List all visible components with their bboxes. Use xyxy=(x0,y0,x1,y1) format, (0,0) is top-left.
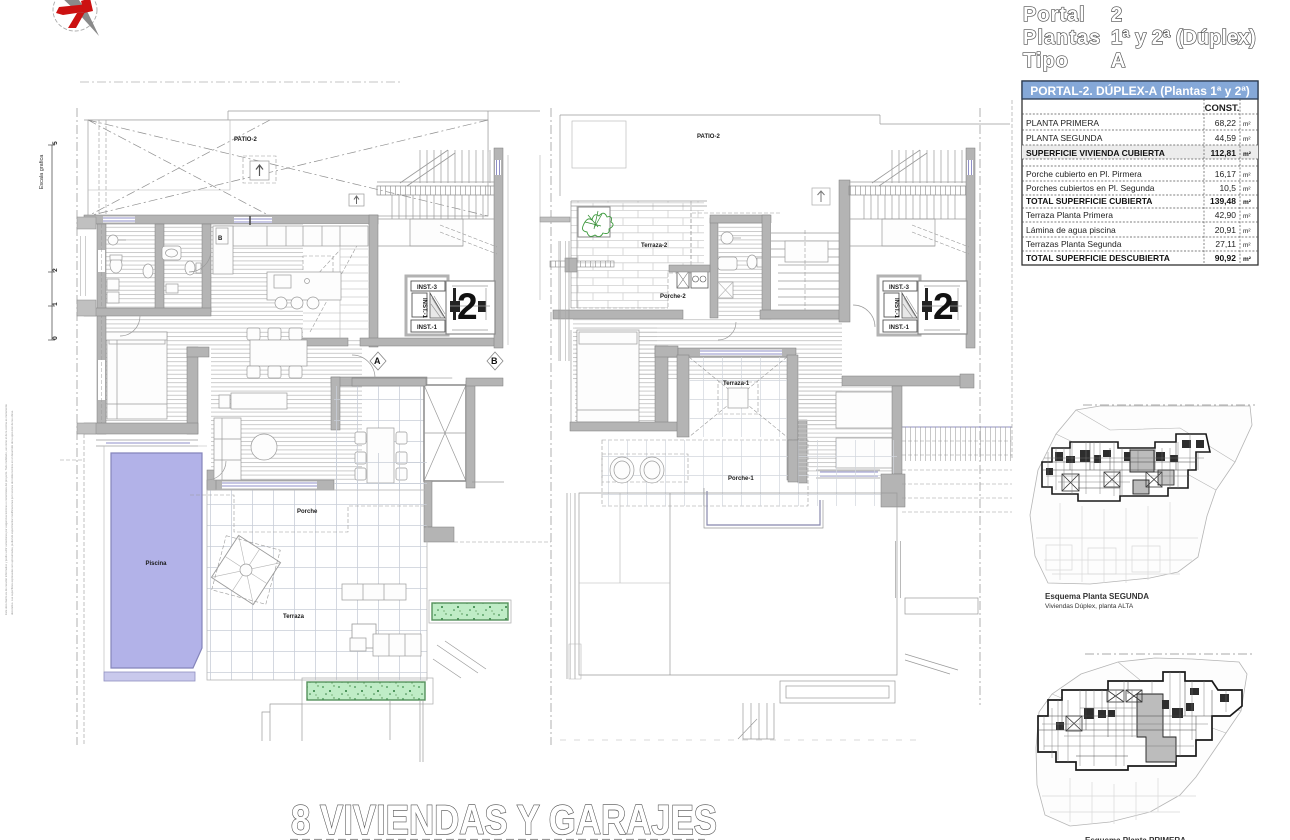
svg-text:m²: m² xyxy=(1243,199,1252,206)
svg-text:Escala grafica: Escala grafica xyxy=(39,154,45,189)
svg-text:139,48: 139,48 xyxy=(1210,196,1236,206)
svg-text:Tipo: Tipo xyxy=(1023,50,1069,72)
svg-text:m²: m² xyxy=(1243,121,1251,128)
svg-text:A: A xyxy=(374,356,381,366)
svg-text:20,91: 20,91 xyxy=(1215,225,1237,235)
svg-text:10,5: 10,5 xyxy=(1219,183,1236,193)
svg-text:112,81: 112,81 xyxy=(1210,148,1236,158)
svg-text:42,90: 42,90 xyxy=(1215,210,1237,220)
svg-text:INST.-3: INST.-3 xyxy=(889,285,910,291)
svg-text:TOTAL SUPERFICIE DESCUBIERTA: TOTAL SUPERFICIE DESCUBIERTA xyxy=(1026,253,1170,263)
svg-text:0: 0 xyxy=(52,336,59,340)
svg-text:Terraza-1: Terraza-1 xyxy=(723,381,750,387)
svg-text:m²: m² xyxy=(1243,242,1251,249)
svg-text:90,92: 90,92 xyxy=(1215,253,1237,263)
svg-text:m²: m² xyxy=(1243,213,1251,220)
svg-text:Porche-1: Porche-1 xyxy=(728,476,754,482)
svg-text:INST.-1: INST.-1 xyxy=(889,325,910,331)
svg-text:1ª y 2ª (Dúplex): 1ª y 2ª (Dúplex) xyxy=(1111,27,1256,49)
svg-text:2: 2 xyxy=(52,268,59,272)
svg-text:CONST.: CONST. xyxy=(1205,103,1240,114)
svg-text:5: 5 xyxy=(52,141,59,145)
svg-text:B: B xyxy=(491,356,498,366)
svg-text:INST.-3: INST.-3 xyxy=(417,285,438,291)
svg-text:PLANTA SEGUNDA: PLANTA SEGUNDA xyxy=(1026,133,1103,143)
svg-text:Terraza Planta Primera: Terraza Planta Primera xyxy=(1026,210,1113,220)
svg-text:m²: m² xyxy=(1243,256,1252,263)
svg-text:m²: m² xyxy=(1243,186,1251,193)
svg-text:2: 2 xyxy=(457,286,478,327)
svg-text:Terraza: Terraza xyxy=(283,614,305,620)
svg-text:Terrazas Planta Segunda: Terrazas Planta Segunda xyxy=(1026,239,1122,249)
svg-text:Piscina: Piscina xyxy=(145,561,167,567)
svg-text:Esquema Planta PRIMERA: Esquema Planta PRIMERA xyxy=(1085,836,1186,840)
svg-text:decorativo. Las superficies ex: decorativo. Las superficies expresadas s… xyxy=(10,410,14,615)
svg-text:INST.-1: INST.-1 xyxy=(893,298,899,319)
svg-text:A: A xyxy=(1111,50,1125,72)
svg-text:Plantas: Plantas xyxy=(1023,27,1101,49)
svg-text:m²: m² xyxy=(1243,136,1251,143)
svg-text:Terraza-2: Terraza-2 xyxy=(641,243,668,249)
svg-text:Viviendas Dúplex, planta ALTA: Viviendas Dúplex, planta ALTA xyxy=(1045,603,1134,610)
svg-text:m²: m² xyxy=(1243,172,1251,179)
svg-text:INST.-1: INST.-1 xyxy=(417,325,438,331)
svg-text:8 VIVIENDAS Y GARAJES: 8 VIVIENDAS Y GARAJES xyxy=(291,796,717,840)
svg-text:16,17: 16,17 xyxy=(1215,169,1237,179)
svg-text:Porche: Porche xyxy=(297,509,318,515)
svg-text:Porche-2: Porche-2 xyxy=(660,294,686,300)
svg-text:2: 2 xyxy=(933,286,954,327)
svg-text:SUPERFICIE VIVIENDA CUBIERTA: SUPERFICIE VIVIENDA CUBIERTA xyxy=(1026,148,1165,158)
svg-text:1: 1 xyxy=(52,302,59,306)
svg-text:PLANTA PRIMERA: PLANTA PRIMERA xyxy=(1026,118,1099,128)
svg-text:TOTAL SUPERFICIE CUBIERTA: TOTAL SUPERFICIE CUBIERTA xyxy=(1026,196,1152,206)
svg-text:44,59: 44,59 xyxy=(1215,133,1237,143)
svg-text:Portal: Portal xyxy=(1023,4,1086,26)
svg-text:INST.-1: INST.-1 xyxy=(421,298,427,319)
svg-text:B: B xyxy=(218,236,223,242)
svg-text:PATIO-2: PATIO-2 xyxy=(234,137,257,143)
svg-text:27,11: 27,11 xyxy=(1215,239,1236,249)
svg-text:m²: m² xyxy=(1243,151,1252,158)
svg-text:PORTAL-2. DÚPLEX-A (Plantas 1ª: PORTAL-2. DÚPLEX-A (Plantas 1ª y 2ª) xyxy=(1030,83,1250,98)
svg-text:PATIO-2: PATIO-2 xyxy=(697,134,720,140)
svg-text:Lámina de agua piscina: Lámina de agua piscina xyxy=(1026,225,1116,235)
svg-text:Porche cubierto en Pl. Pirmera: Porche cubierto en Pl. Pirmera xyxy=(1026,169,1142,179)
svg-text:68,22: 68,22 xyxy=(1215,118,1237,128)
svg-text:Esquema Planta SEGUNDA: Esquema Planta SEGUNDA xyxy=(1045,592,1149,601)
svg-text:Este documento es de caracter: Este documento es de caracter informativ… xyxy=(4,404,8,615)
svg-text:2: 2 xyxy=(1111,4,1122,26)
svg-text:m²: m² xyxy=(1243,228,1251,235)
svg-text:Porches cubiertos en Pl. Segun: Porches cubiertos en Pl. Segunda xyxy=(1026,183,1155,193)
